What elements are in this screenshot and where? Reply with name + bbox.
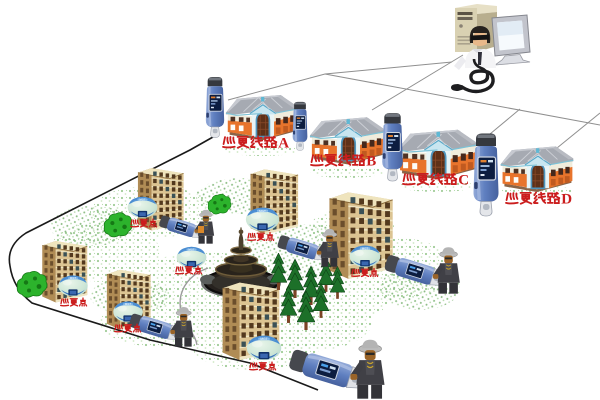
svg-text:C: C bbox=[458, 172, 469, 188]
svg-text:B: B bbox=[366, 153, 376, 169]
svg-text:A: A bbox=[278, 135, 289, 151]
svg-text:D: D bbox=[561, 191, 572, 207]
